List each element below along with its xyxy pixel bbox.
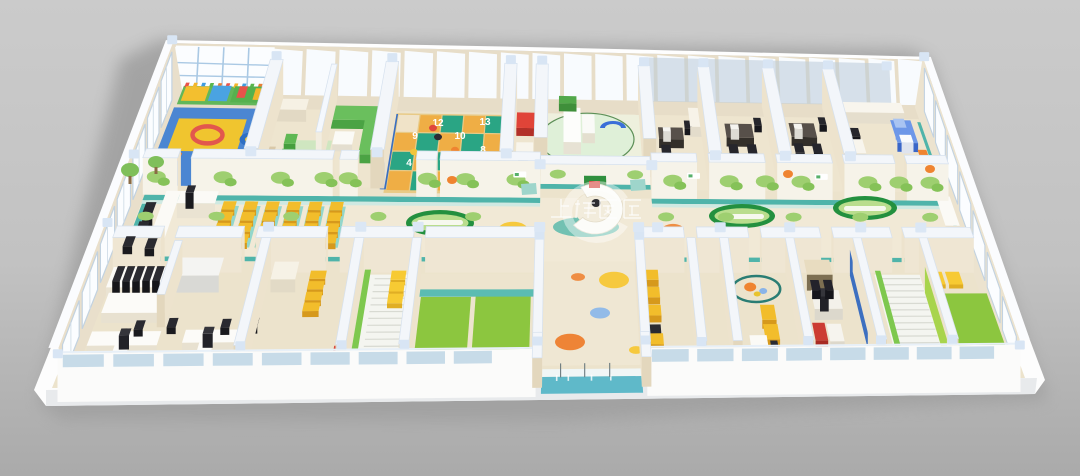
svg-text:13: 13	[479, 117, 491, 128]
svg-text:10: 10	[454, 131, 466, 142]
svg-text:9: 9	[412, 131, 418, 142]
svg-text:4: 4	[406, 158, 412, 169]
